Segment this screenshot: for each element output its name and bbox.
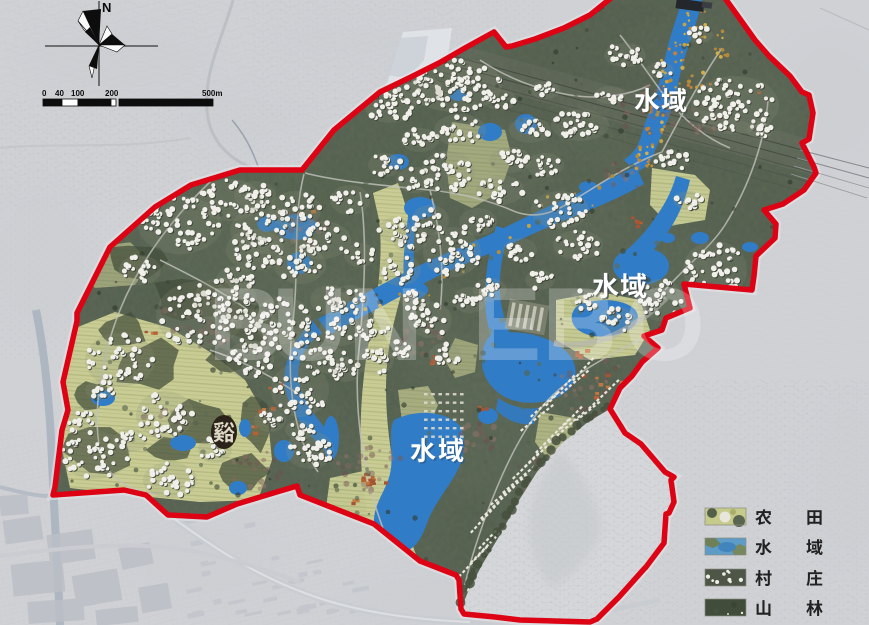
- svg-text:O: O: [624, 267, 705, 383]
- svg-text:500m: 500m: [202, 89, 222, 98]
- svg-text:N: N: [102, 0, 111, 15]
- svg-text:100: 100: [71, 89, 85, 98]
- svg-text:E: E: [472, 267, 541, 383]
- svg-text:U: U: [272, 267, 347, 383]
- svg-text:B: B: [542, 267, 617, 383]
- svg-text:0: 0: [42, 89, 47, 98]
- svg-text:200: 200: [105, 89, 119, 98]
- svg-text:N: N: [348, 267, 423, 383]
- svg-text:40: 40: [55, 89, 64, 98]
